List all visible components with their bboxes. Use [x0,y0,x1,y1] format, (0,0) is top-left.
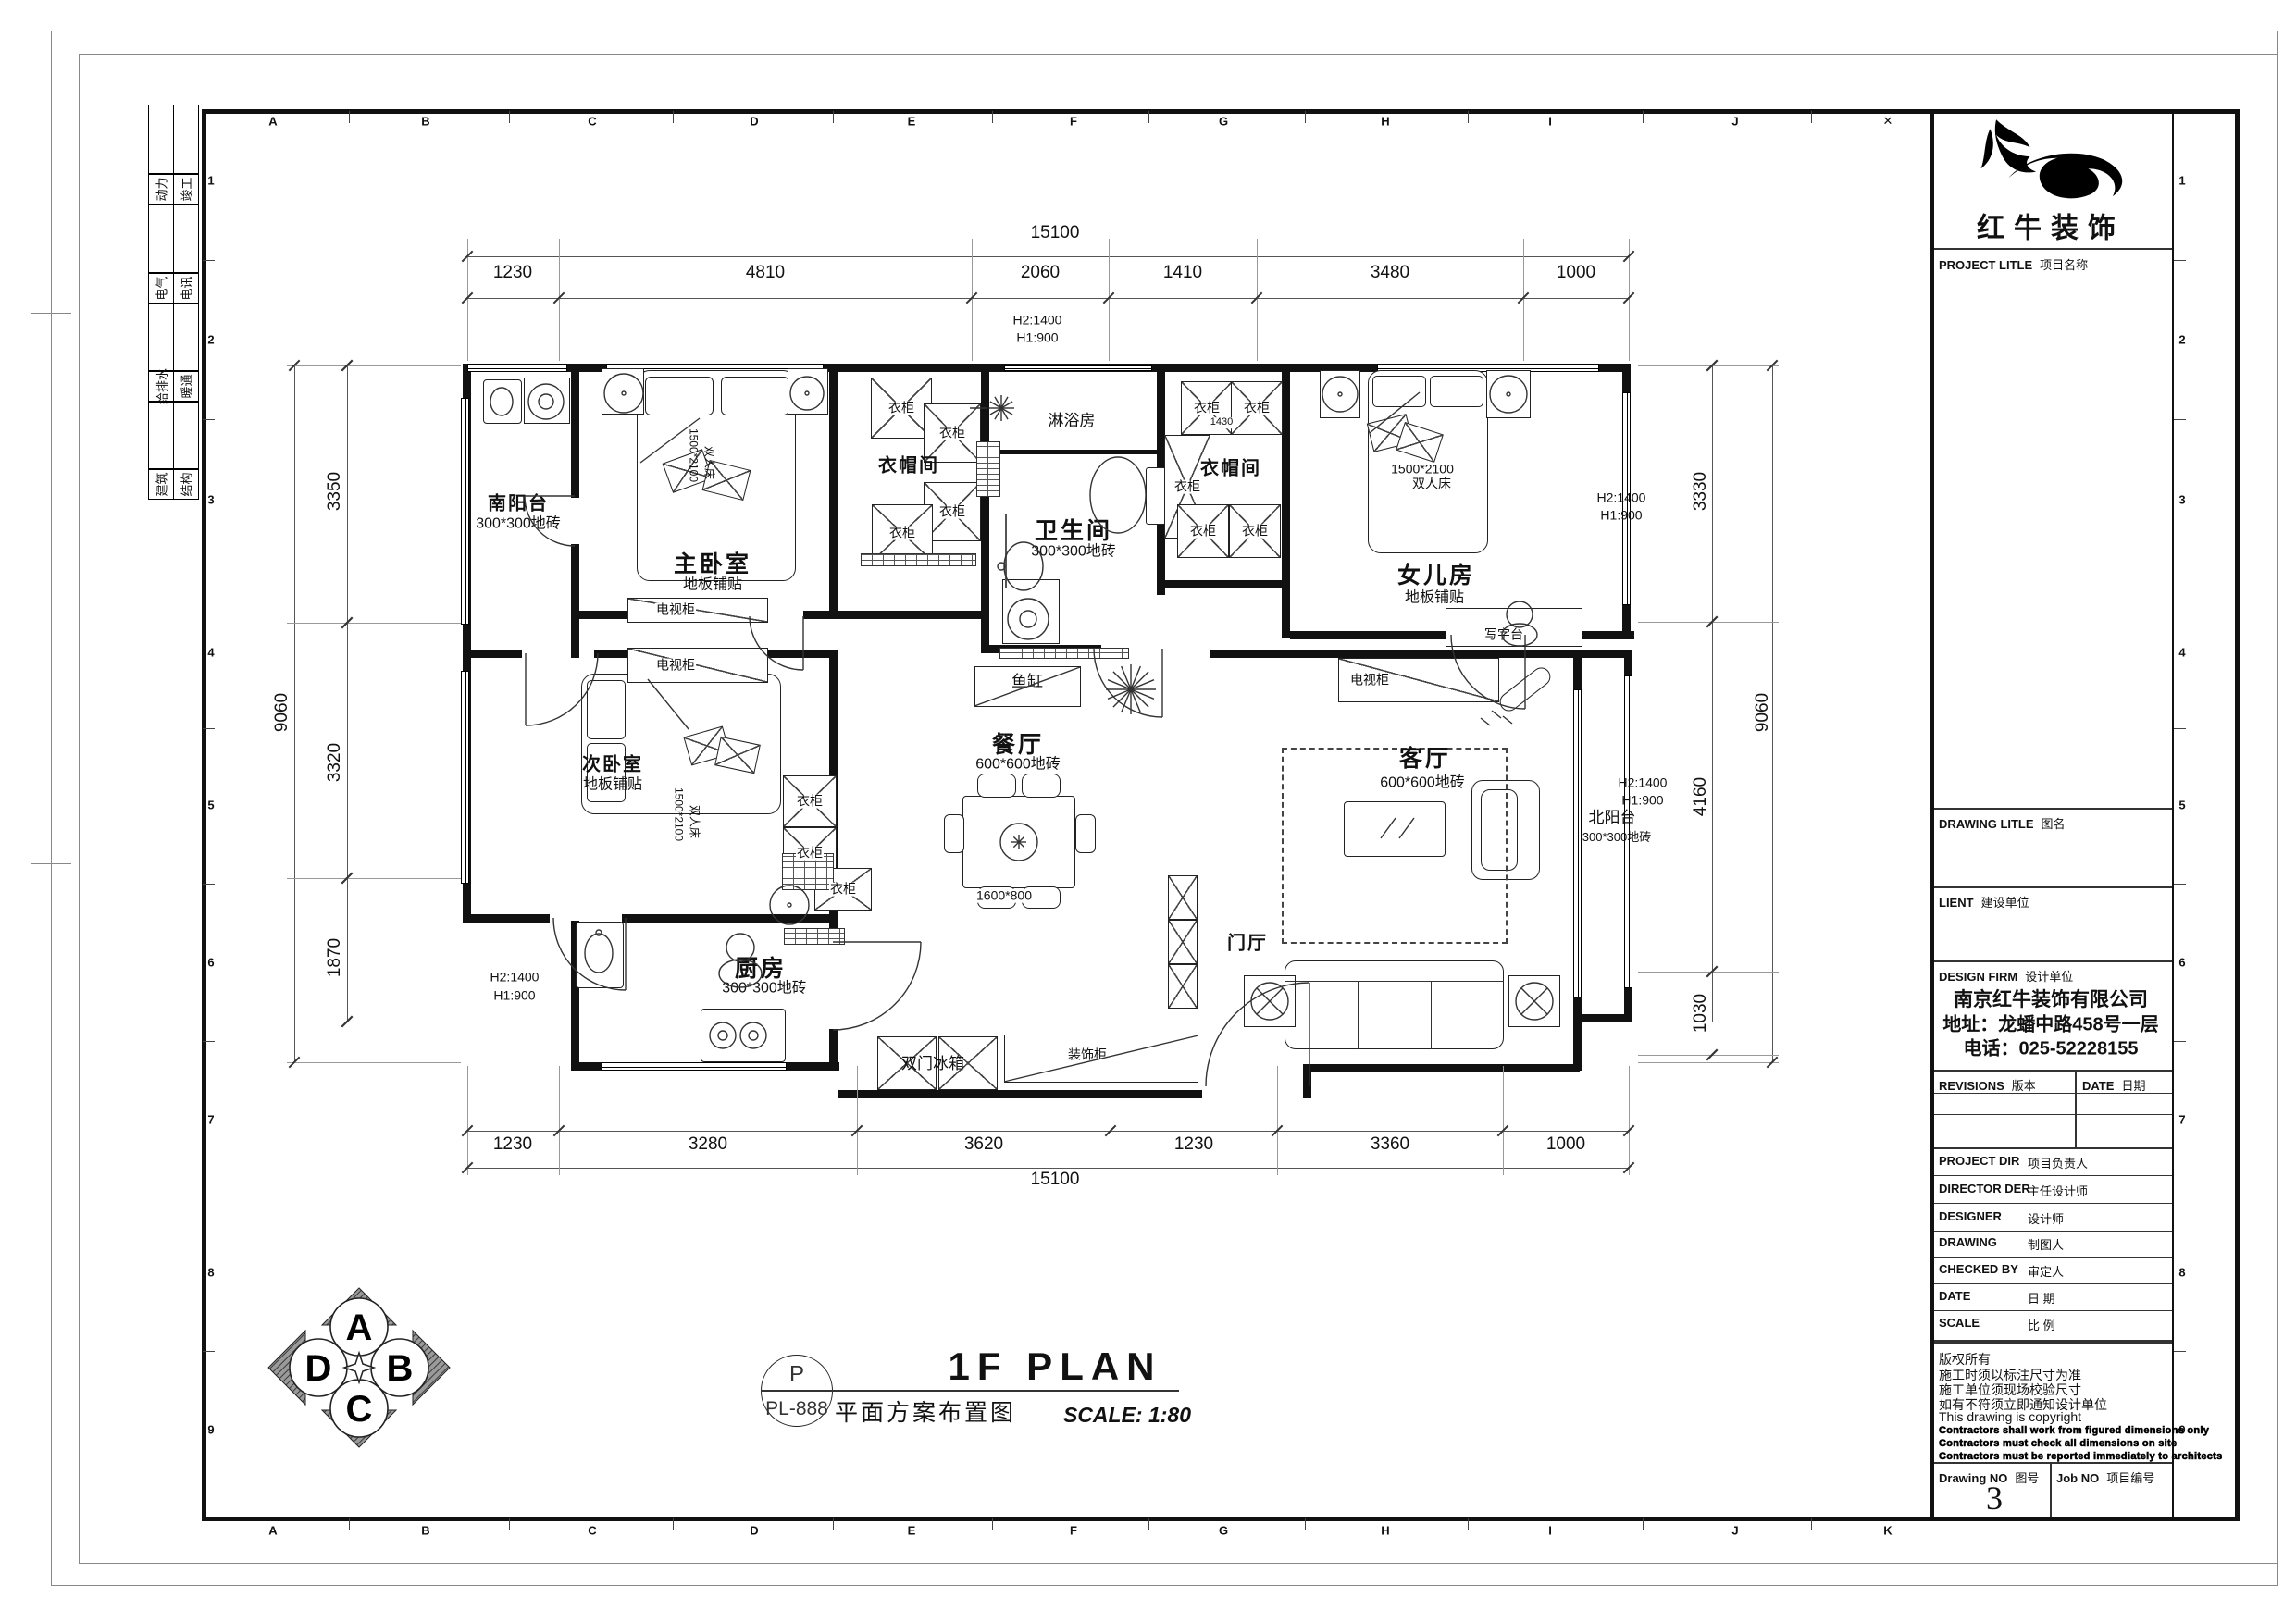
firm-phone: 电话：025-52228155 [1963,1040,2138,1059]
plant-starburst [1013,842,1019,848]
detail-tag-letter: P [789,1362,804,1385]
compass-east: B [387,1348,414,1389]
plant-starburst [1131,672,1148,689]
title-block-row: DESIGNER设计师 [1939,1209,2002,1223]
firm-name: 南京红牛装饰有限公司 [1954,990,2148,1010]
detail-line [1381,818,1396,838]
plant-starburst [1019,842,1024,848]
fixture-circle [622,391,626,395]
door-arc [526,653,598,725]
fixture-ellipse [1090,457,1146,533]
row-label-cn: 比 例 [2028,1316,2055,1333]
fixture-circle [790,377,824,410]
fixture-circle [528,384,564,419]
fixture-ellipse [490,388,513,415]
project-title-label-en: PROJECT LITLE [1939,258,2032,272]
row-label-en: DIRECTOR DER [1939,1182,2030,1196]
revisions-date-label: DATE日期 [2082,1076,2145,1094]
compass-west: D [305,1348,332,1389]
row-label-en: PROJECT DIR [1939,1154,2019,1168]
fixture-circle [740,1022,766,1048]
client-label: LIENT建设单位 [1939,893,2029,911]
detail-line [640,418,700,463]
fixture-circle [788,903,791,907]
fixture-circle [770,886,809,924]
revisions-label-cn: 版本 [2012,1079,2036,1093]
client-label-cn: 建设单位 [1981,896,2029,910]
drawing-no-label-cn: 图号 [2015,1471,2039,1485]
fixture-circle [718,1031,727,1040]
revisions-date-en: DATE [2082,1079,2114,1093]
fixture-circle [539,394,553,409]
detail-line [1370,392,1420,433]
row-label-cn: 制图人 [2028,1235,2064,1253]
contractor-note: Contractors must be reported immediately… [1939,1451,2223,1462]
detail-line [1503,716,1512,724]
firm-address: 地址：龙蟠中路458号一层 [1942,1016,2158,1035]
contractor-note: Contractors shall work from figured dime… [1939,1425,2209,1436]
client-label-en: LIENT [1939,896,1974,910]
drawing-number: 3 [1986,1481,2003,1517]
fixture-circle [710,1022,736,1048]
plant-starburst [1019,836,1024,842]
fixture-circle [1507,392,1510,396]
door-arc [750,616,803,670]
door-arc [1206,983,1309,1086]
compass-rose: A B C D [267,1286,452,1451]
fixture-circle [1338,392,1342,396]
drawing-sheet: 15100123048102060141034801000H2:1400H1:9… [0,0,2296,1623]
fixture-circle [1008,599,1049,639]
revisions-date-cn: 日期 [2121,1079,2145,1093]
row-label-cn: 项目负责人 [2028,1154,2088,1171]
fixture-circle [1020,611,1036,627]
fixture-circle [749,1031,758,1040]
design-firm-label-en: DESIGN FIRM [1939,970,2017,984]
job-no-label-cn: 项目编号 [2106,1471,2154,1485]
row-label-cn: 日 期 [2028,1289,2055,1307]
title-block-row: DIRECTOR DER主任设计师 [1939,1182,2030,1196]
detail-line [1399,818,1414,838]
detail-line [648,679,689,729]
plant-starburst [1131,689,1148,707]
plan-scale: SCALE: 1:80 [1063,1404,1191,1426]
fixture-circle [726,934,754,961]
fixture-circle [604,374,643,413]
plan-title: 1F PLAN [948,1346,1161,1387]
revisions-label: REVISIONS版本 [1939,1076,2036,1094]
detail-tag-code: PL-888 [765,1399,828,1419]
redniu-bull-logo [1962,117,2147,205]
title-block-row: PROJECT DIR项目负责人 [1939,1154,2019,1168]
title-underline [761,1390,1179,1392]
fixture-ellipse [719,960,762,987]
detail-line [1481,718,1490,725]
plan-subtitle: 平面方案布置图 [835,1401,1016,1425]
fixture-circle [596,930,602,935]
door-arc [833,942,921,1030]
fixture-circle [1322,377,1358,412]
compass-south: C [346,1389,373,1430]
revisions-label-en: REVISIONS [1939,1079,2004,1093]
row-label-en: DRAWING [1939,1235,1997,1249]
copyright-note: This drawing is copyright [1939,1409,2081,1424]
door-arc [553,918,626,990]
row-label-cn: 设计师 [2028,1209,2064,1227]
fixture-circle [805,391,809,395]
row-label-en: DESIGNER [1939,1209,2002,1223]
row-label-en: SCALE [1939,1316,1980,1330]
design-firm-label: DESIGN FIRM设计单位 [1939,967,2073,985]
job-no-label-en: Job NO [2056,1471,2099,1485]
fixture-circle [1490,376,1527,413]
drawing-title-label: DRAWING LITLE图名 [1939,814,2066,832]
title-block-row: SCALE比 例 [1939,1316,1980,1330]
row-label-cn: 审定人 [2028,1262,2064,1280]
door-arc [525,496,575,546]
title-block-row: CHECKED BY审定人 [1939,1262,2018,1276]
detail-line [1492,711,1501,718]
compass-north: A [346,1307,373,1348]
fixture-ellipse [1004,542,1043,590]
job-no-label: Job NO项目编号 [2056,1468,2154,1486]
drawing-title-label-en: DRAWING LITLE [1939,817,2034,831]
drawing-title-label-cn: 图名 [2042,817,2066,831]
plant-starburst [1013,836,1019,842]
row-label-en: CHECKED BY [1939,1262,2018,1276]
detail-line [1004,1035,1198,1082]
plant-starburst [1113,672,1131,689]
project-title-label: PROJECT LITLE项目名称 [1939,255,2088,273]
contractor-note: Contractors must check all dimensions on… [1939,1438,2177,1449]
project-title-label-cn: 项目名称 [2040,258,2088,272]
row-label-en: DATE [1939,1289,1970,1303]
title-block-row: DRAWING制图人 [1939,1235,1997,1249]
design-firm-label-cn: 设计单位 [2025,970,2073,984]
fixture-ellipse [585,934,613,973]
brand-name: 红牛装饰 [1977,214,2125,243]
row-label-cn: 主任设计师 [2028,1182,2088,1199]
title-block-row: DATE日 期 [1939,1289,1970,1303]
detail-line [974,667,1080,706]
